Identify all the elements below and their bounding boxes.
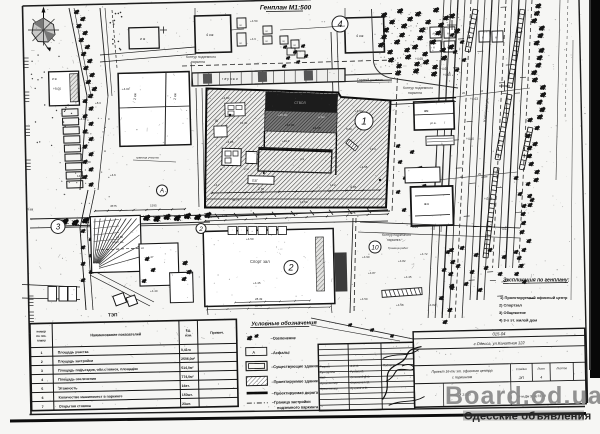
svg-text:14.62: 14.62: [77, 174, 85, 178]
svg-text:ж.бет: ж.бет: [318, 115, 326, 119]
svg-text:8.10: 8.10: [346, 127, 352, 131]
svg-text:Площадь застройки: Площадь застройки: [58, 359, 93, 364]
svg-text:+4.47: +4.47: [146, 255, 154, 259]
svg-text:+4.50: +4.50: [116, 235, 124, 239]
svg-text:–Асфальт: –Асфальт: [271, 350, 290, 355]
svg-text:+41.30: +41.30: [285, 123, 295, 127]
svg-text:+4.66: +4.66: [440, 67, 448, 71]
svg-text:–Проектируемое здание: –Проектируемое здание: [271, 378, 319, 384]
svg-text:Ф.И.О.: Ф.И.О.: [350, 364, 359, 368]
svg-text:2: 2: [287, 263, 293, 273]
svg-text:23шт.: 23шт.: [182, 402, 191, 406]
svg-text:+4.45: +4.45: [253, 281, 261, 285]
svg-text:–Озеленение: –Озеленение: [270, 335, 296, 341]
svg-text:4575: 4575: [110, 204, 117, 208]
svg-text:Примеч.: Примеч.: [210, 331, 224, 335]
svg-text:ул.в.: ул.в.: [430, 121, 437, 125]
svg-text:Архитектор: Архитектор: [319, 386, 338, 390]
svg-text:4 эт: 4 эт: [350, 185, 356, 189]
svg-text:плану: плану: [37, 338, 46, 342]
svg-text:2) Спортзал: 2) Спортзал: [499, 303, 522, 308]
svg-text:Рук.группы: Рук.группы: [320, 370, 336, 374]
svg-text:Контур подземного: Контур подземного: [403, 86, 433, 90]
svg-text:Граница работ: Граница работ: [388, 246, 409, 250]
svg-text:Разраб.: Разраб.: [320, 364, 331, 368]
svg-text:+4.67: +4.67: [420, 27, 428, 31]
svg-text:Открытая стоянка: Открытая стоянка: [59, 404, 91, 409]
svg-text:0,41га: 0,41га: [181, 348, 191, 352]
svg-text:+4.40: +4.40: [150, 289, 158, 293]
svg-text:подземного паркинга: подземного паркинга: [277, 404, 319, 410]
svg-text:2506,0м²: 2506,0м²: [181, 357, 196, 361]
svg-text:3: 3: [56, 222, 61, 231]
svg-text:+4.75: +4.75: [290, 212, 298, 216]
svg-text:–Существующие здания: –Существующие здания: [271, 363, 318, 369]
svg-text:+4.45: +4.45: [404, 275, 412, 279]
svg-text:спорт пл.: спорт пл.: [112, 240, 124, 244]
svg-text:н: н: [433, 32, 435, 36]
svg-text:г а р а ж и: г а р а ж и: [222, 77, 238, 81]
svg-text:Кучевой А.В.: Кучевой А.В.: [350, 386, 367, 390]
svg-text:л.2: л.2: [300, 157, 304, 161]
svg-text:+4.87: +4.87: [368, 271, 376, 275]
svg-text:Сорокина Н.В.: Сорокина Н.В.: [350, 380, 370, 384]
svg-text:Листов: Листов: [555, 366, 567, 370]
svg-text:+4.82: +4.82: [398, 259, 406, 263]
svg-text:36: 36: [460, 175, 464, 179]
svg-text:+4.55: +4.55: [360, 165, 368, 169]
svg-text:2 эт: 2 эт: [258, 187, 264, 191]
svg-text:+4.50: +4.50: [250, 19, 258, 23]
svg-text:Площадь озеленения: Площадь озеленения: [58, 377, 96, 382]
svg-text:10: 10: [371, 244, 379, 251]
svg-text:49,75: 49,75: [232, 198, 240, 202]
svg-text:+9.00: +9.00: [53, 87, 61, 91]
svg-text:1.48: 1.48: [83, 131, 89, 135]
svg-text:20: 20: [462, 91, 466, 95]
svg-text:А: А: [252, 350, 255, 355]
svg-text:4 кж: 4 кж: [206, 33, 214, 37]
svg-text:+45.30: +45.30: [278, 113, 288, 117]
svg-text:м: м: [294, 43, 296, 47]
svg-text:м: м: [240, 23, 242, 27]
svg-text:–Проектируемая дорога: –Проектируемая дорога: [272, 390, 319, 396]
svg-text:+4.90: +4.90: [362, 255, 370, 259]
svg-text:4.60: 4.60: [85, 160, 91, 164]
svg-text:м: м: [220, 167, 222, 171]
svg-text:Генплан М1:500: Генплан М1:500: [260, 5, 312, 12]
svg-text:+8.3: +8.3: [95, 101, 101, 105]
svg-text:м: м: [266, 39, 268, 43]
svg-text:+4.75: +4.75: [348, 211, 356, 215]
svg-text:+4.63: +4.63: [470, 97, 478, 101]
svg-text:+4.82: +4.82: [428, 303, 436, 307]
svg-text:паркинга: паркинга: [387, 238, 401, 242]
svg-text:Контур подземного: Контур подземного: [186, 55, 216, 59]
svg-text:+4.50: +4.50: [222, 96, 230, 100]
svg-text:4: 4: [540, 376, 542, 380]
svg-text:4: 4: [337, 19, 342, 29]
svg-text:1: 1: [361, 117, 367, 128]
svg-text:м: м: [283, 39, 285, 43]
svg-text:паркинга: паркинга: [191, 60, 205, 64]
svg-text:А: А: [104, 149, 106, 153]
svg-text:+4.75: +4.75: [220, 214, 228, 218]
svg-text:25: 25: [478, 172, 482, 176]
svg-text:2: 2: [198, 226, 203, 233]
svg-text:+4.65: +4.65: [415, 57, 423, 61]
svg-text:2 эт: 2 эт: [244, 167, 250, 171]
svg-text:6: 6: [42, 396, 44, 400]
svg-text:Площадь участка: Площадь участка: [58, 350, 89, 355]
svg-text:12,50: 12,50: [300, 200, 308, 204]
svg-text:Стадия: Стадия: [516, 367, 527, 371]
svg-text:22.40: 22.40: [255, 304, 262, 308]
svg-text:+4.6: +4.6: [250, 37, 256, 41]
svg-text:4: 4: [41, 378, 43, 382]
svg-text:14.2: 14.2: [330, 183, 336, 187]
svg-text:Board.od.ua: Board.od.ua: [445, 382, 600, 410]
svg-text:+4.58: +4.58: [78, 146, 86, 150]
svg-text:3) Общежитие: 3) Общежитие: [499, 310, 527, 315]
svg-text:ж.к: ж.к: [424, 202, 429, 206]
svg-text:12.4: 12.4: [370, 147, 376, 151]
svg-text:+4.6: +4.6: [110, 173, 116, 177]
svg-text:СТВОЛ: СТВОЛ: [294, 101, 305, 105]
svg-text:+4.72: +4.72: [420, 252, 428, 256]
svg-text:А: А: [159, 189, 164, 195]
svg-text:+4.58: +4.58: [396, 303, 404, 307]
svg-text:+4.63: +4.63: [484, 197, 492, 201]
svg-text:2 кж: 2 кж: [133, 92, 137, 100]
svg-text:28.49: 28.49: [255, 297, 263, 301]
svg-text:+4.60: +4.60: [466, 137, 474, 141]
svg-text:Лист: Лист: [536, 367, 545, 371]
svg-text:ЭП: ЭП: [519, 376, 525, 380]
svg-text:м: м: [240, 41, 242, 45]
svg-text:Одесские объявления: Одесские объявления: [464, 411, 591, 423]
svg-text:1) Проектируемый офисный цент: 1) Проектируемый офисный центр: [500, 295, 568, 300]
svg-text:Архитектор: Архитектор: [319, 381, 338, 385]
svg-text:4 кж: 4 кж: [27, 208, 34, 212]
svg-text:+4.00: +4.00: [122, 87, 130, 91]
svg-text:015-04: 015-04: [492, 331, 506, 336]
svg-text:+4.65: +4.65: [226, 140, 234, 144]
svg-text:514,0м²: 514,0м²: [181, 366, 194, 370]
svg-text:изм.: изм.: [185, 333, 192, 337]
svg-text:1: 1: [41, 351, 43, 355]
svg-text:+4.50: +4.50: [246, 237, 254, 241]
svg-text:4) 3-х эт. жилой дом: 4) 3-х эт. жилой дом: [499, 318, 537, 323]
svg-text:н: н: [447, 32, 449, 36]
svg-text:16.30: 16.30: [240, 121, 248, 125]
svg-text:паркинга: паркинга: [408, 91, 422, 95]
svg-text:с паркингом: с паркингом: [452, 375, 473, 379]
svg-text:ТЭП: ТЭП: [108, 312, 117, 317]
svg-text:жм: жм: [424, 109, 428, 113]
svg-text:+4.50: +4.50: [360, 297, 368, 301]
svg-text:+4.02: +4.02: [79, 117, 87, 121]
svg-text:4 кж: 4 кж: [356, 34, 364, 38]
svg-text:н: н: [433, 46, 435, 50]
svg-text:м: м: [266, 29, 268, 33]
svg-text:2 кж: 2 кж: [173, 92, 177, 100]
svg-text:+41.3: +41.3: [282, 139, 290, 143]
svg-text:и ж: и ж: [140, 37, 146, 41]
svg-text:Отешкин Д.О.: Отешкин Д.О.: [350, 375, 370, 379]
svg-text:7: 7: [42, 405, 44, 409]
svg-text:16: 16: [480, 89, 484, 93]
svg-text:2: 2: [41, 360, 43, 364]
svg-text:27: 27: [496, 169, 500, 173]
svg-text:граница участка: граница участка: [136, 156, 159, 160]
svg-text:ПЗГ: ПЗГ: [252, 179, 258, 183]
svg-text:3: 3: [41, 369, 43, 373]
svg-text:150шт.: 150шт.: [182, 393, 193, 397]
svg-text:+4.40: +4.40: [355, 109, 363, 113]
svg-text:774,0м²: 774,0м²: [181, 375, 194, 379]
svg-text:1595: 1595: [150, 204, 157, 208]
svg-text:14.65: 14.65: [313, 126, 321, 130]
svg-text:Спорт зал: Спорт зал: [250, 259, 270, 264]
svg-text:+4.7: +4.7: [214, 183, 220, 187]
svg-text:Ед.: Ед.: [186, 328, 191, 332]
svg-text:Рушаев В.: Рушаев В.: [350, 369, 364, 373]
svg-text:Этажность: Этажность: [58, 386, 78, 390]
svg-text:5: 5: [41, 387, 43, 391]
